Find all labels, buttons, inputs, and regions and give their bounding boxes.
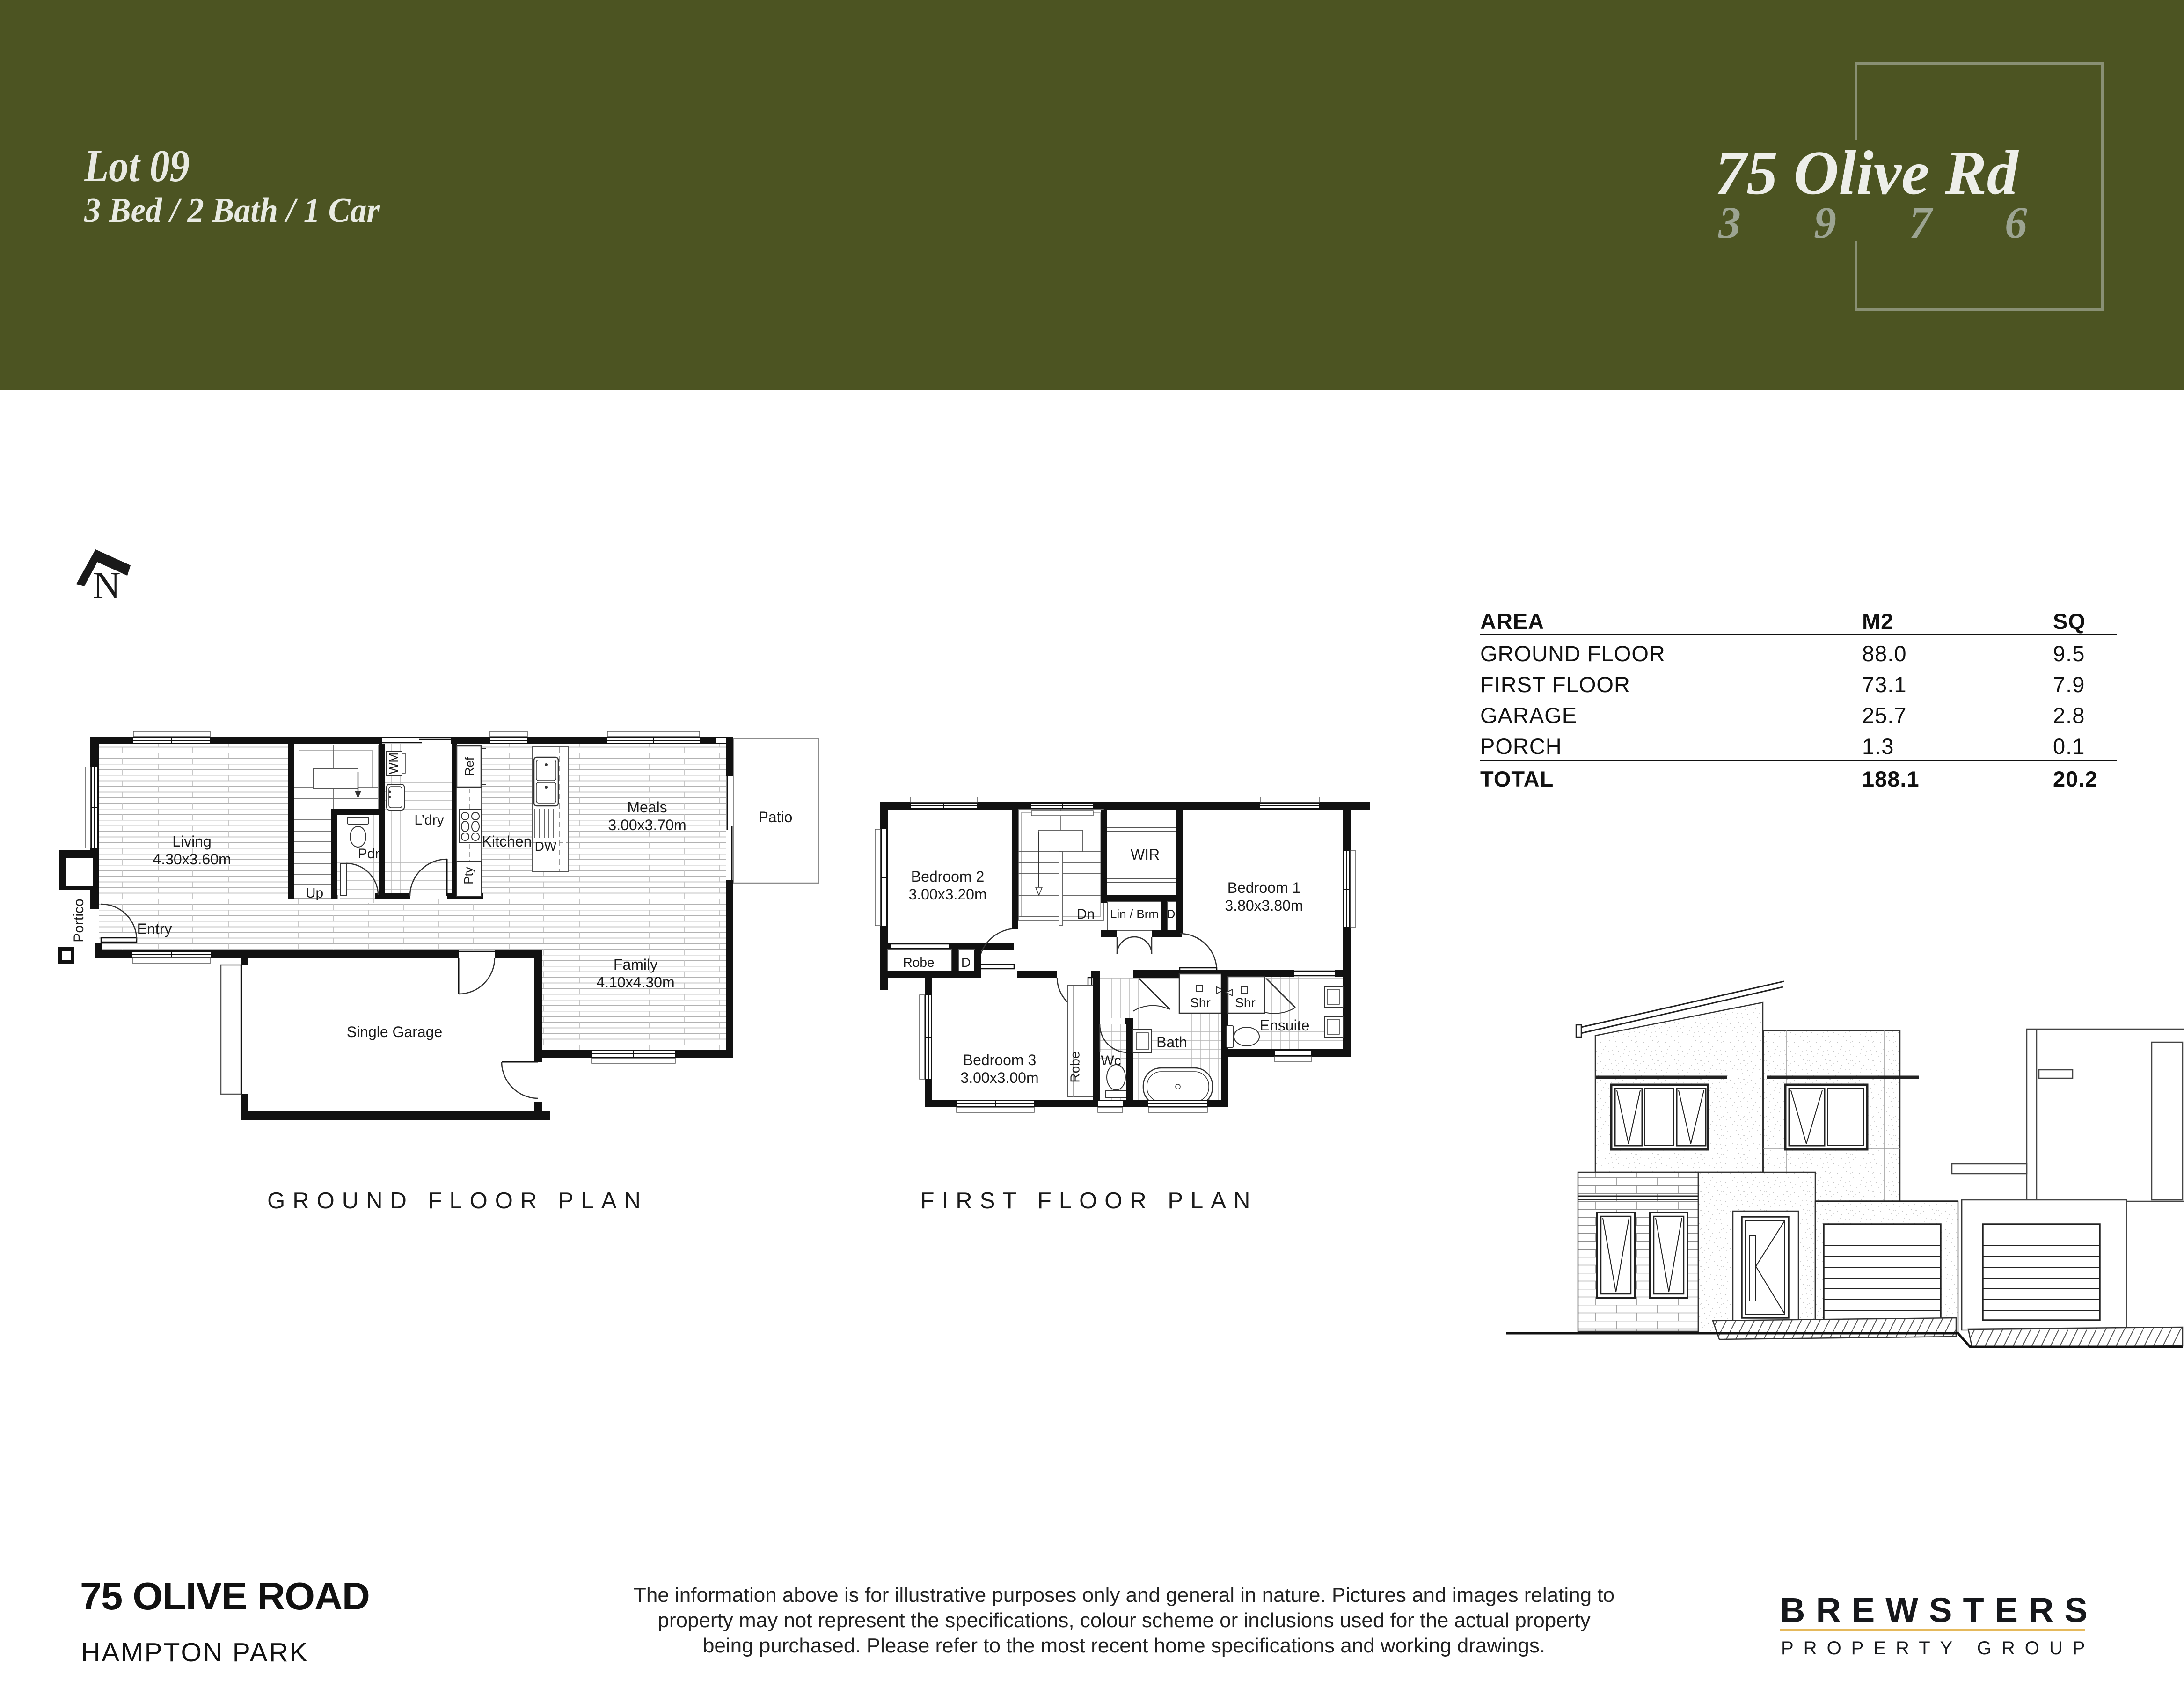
svg-text:Patio: Patio (759, 809, 793, 826)
svg-text:Shr: Shr (1190, 995, 1211, 1010)
svg-text:Family: Family (614, 956, 657, 973)
svg-text:L’dry: L’dry (414, 812, 444, 828)
svg-text:DW: DW (535, 839, 557, 854)
svg-text:Lin / Brm: Lin / Brm (1110, 907, 1159, 921)
svg-text:Meals: Meals (627, 799, 667, 816)
svg-text:N: N (93, 564, 120, 607)
svg-text:3.00x3.00m: 3.00x3.00m (960, 1069, 1038, 1086)
svg-text:Bedroom 3: Bedroom 3 (963, 1052, 1037, 1068)
svg-text:Ensuite: Ensuite (1260, 1017, 1310, 1034)
svg-text:FIRST FLOOR PLAN: FIRST FLOOR PLAN (920, 1188, 1258, 1213)
svg-text:WM: WM (387, 753, 401, 774)
svg-text:Pdr: Pdr (358, 846, 380, 862)
svg-text:Portico: Portico (71, 899, 87, 942)
svg-text:Wc: Wc (1101, 1053, 1121, 1068)
svg-text:Up: Up (306, 885, 323, 901)
svg-text:3.00x3.70m: 3.00x3.70m (608, 817, 686, 833)
svg-text:Shr: Shr (1235, 995, 1256, 1010)
svg-text:D: D (1167, 907, 1176, 921)
svg-text:Single Garage: Single Garage (347, 1023, 443, 1040)
svg-text:D: D (961, 955, 971, 970)
svg-text:Bedroom 2: Bedroom 2 (911, 868, 985, 885)
svg-text:GROUND FLOOR PLAN: GROUND FLOOR PLAN (267, 1188, 648, 1213)
svg-text:3.00x3.20m: 3.00x3.20m (908, 886, 986, 903)
svg-text:Entry: Entry (137, 921, 172, 937)
svg-text:Dn: Dn (1077, 906, 1095, 922)
svg-text:Kitchen: Kitchen (482, 833, 532, 850)
svg-text:4.30x3.60m: 4.30x3.60m (153, 851, 231, 868)
svg-text:Robe: Robe (903, 955, 935, 970)
svg-text:Pty: Pty (461, 867, 475, 884)
svg-text:WIR: WIR (1131, 846, 1160, 863)
svg-text:Bath: Bath (1156, 1034, 1187, 1051)
svg-text:Robe: Robe (1067, 1052, 1082, 1083)
svg-text:Living: Living (172, 833, 212, 850)
svg-text:Bedroom 1: Bedroom 1 (1227, 879, 1301, 896)
svg-text:3.80x3.80m: 3.80x3.80m (1225, 897, 1303, 914)
svg-text:4.10x4.30m: 4.10x4.30m (596, 974, 674, 991)
svg-text:Ref: Ref (462, 757, 476, 776)
